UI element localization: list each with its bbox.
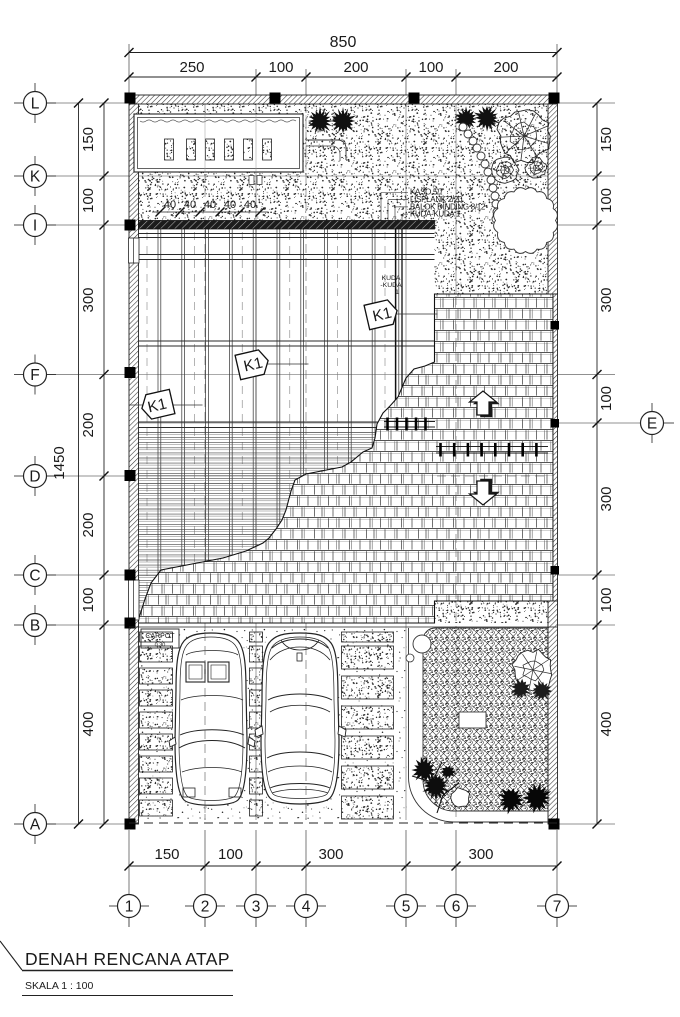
svg-text:100: 100 (418, 59, 443, 76)
svg-text:F: F (30, 367, 39, 384)
svg-text:L: L (31, 96, 40, 113)
svg-text:40: 40 (184, 199, 196, 211)
svg-text:I: I (33, 218, 37, 235)
svg-text:K: K (30, 169, 41, 186)
svg-text:300: 300 (468, 846, 493, 863)
svg-text:DENAH RENCANA ATAP: DENAH RENCANA ATAP (25, 949, 230, 969)
svg-text:400: 400 (80, 711, 97, 736)
svg-text:300: 300 (598, 486, 615, 511)
svg-text:4: 4 (302, 899, 311, 916)
svg-text:300: 300 (598, 287, 615, 312)
svg-text:850: 850 (330, 34, 357, 51)
svg-text:B: B (30, 618, 40, 635)
svg-text:100: 100 (598, 587, 615, 612)
svg-text:100: 100 (218, 846, 243, 863)
svg-text:250: 250 (179, 59, 204, 76)
svg-text:40: 40 (204, 199, 216, 211)
svg-text:300: 300 (318, 846, 343, 863)
svg-text:KUDA: KUDA (382, 275, 401, 282)
svg-text:150: 150 (80, 127, 97, 152)
svg-text:200: 200 (80, 512, 97, 537)
svg-text:300: 300 (80, 287, 97, 312)
svg-text:D: D (29, 469, 40, 486)
svg-text:1: 1 (125, 899, 134, 916)
svg-text:KUDA-KUDA 1: KUDA-KUDA 1 (410, 210, 461, 219)
svg-text:7: 7 (553, 899, 562, 916)
svg-text:100: 100 (598, 386, 615, 411)
svg-text:400: 400 (598, 711, 615, 736)
svg-text:150: 150 (154, 846, 179, 863)
svg-text:5: 5 (402, 899, 411, 916)
svg-text:40: 40 (244, 199, 256, 211)
svg-text:1450: 1450 (51, 446, 68, 479)
svg-text:100: 100 (80, 587, 97, 612)
svg-text:C: C (29, 568, 40, 585)
svg-text:2: 2 (201, 899, 210, 916)
svg-text:200: 200 (343, 59, 368, 76)
svg-text:3: 3 (252, 899, 261, 916)
svg-text:6: 6 (452, 899, 461, 916)
svg-text:200: 200 (493, 59, 518, 76)
svg-text:SKALA 1 : 100: SKALA 1 : 100 (25, 980, 93, 992)
svg-text:150: 150 (598, 127, 615, 152)
svg-text:40: 40 (224, 199, 236, 211)
svg-text:E: E (647, 416, 657, 433)
svg-text:100: 100 (80, 188, 97, 213)
svg-text:100: 100 (598, 188, 615, 213)
svg-text:200: 200 (80, 412, 97, 437)
svg-text:A: A (30, 817, 41, 834)
svg-text:1: 1 (395, 289, 399, 296)
svg-text:40: 40 (164, 199, 176, 211)
svg-text:-KUDA: -KUDA (380, 282, 402, 289)
svg-text:100: 100 (268, 59, 293, 76)
